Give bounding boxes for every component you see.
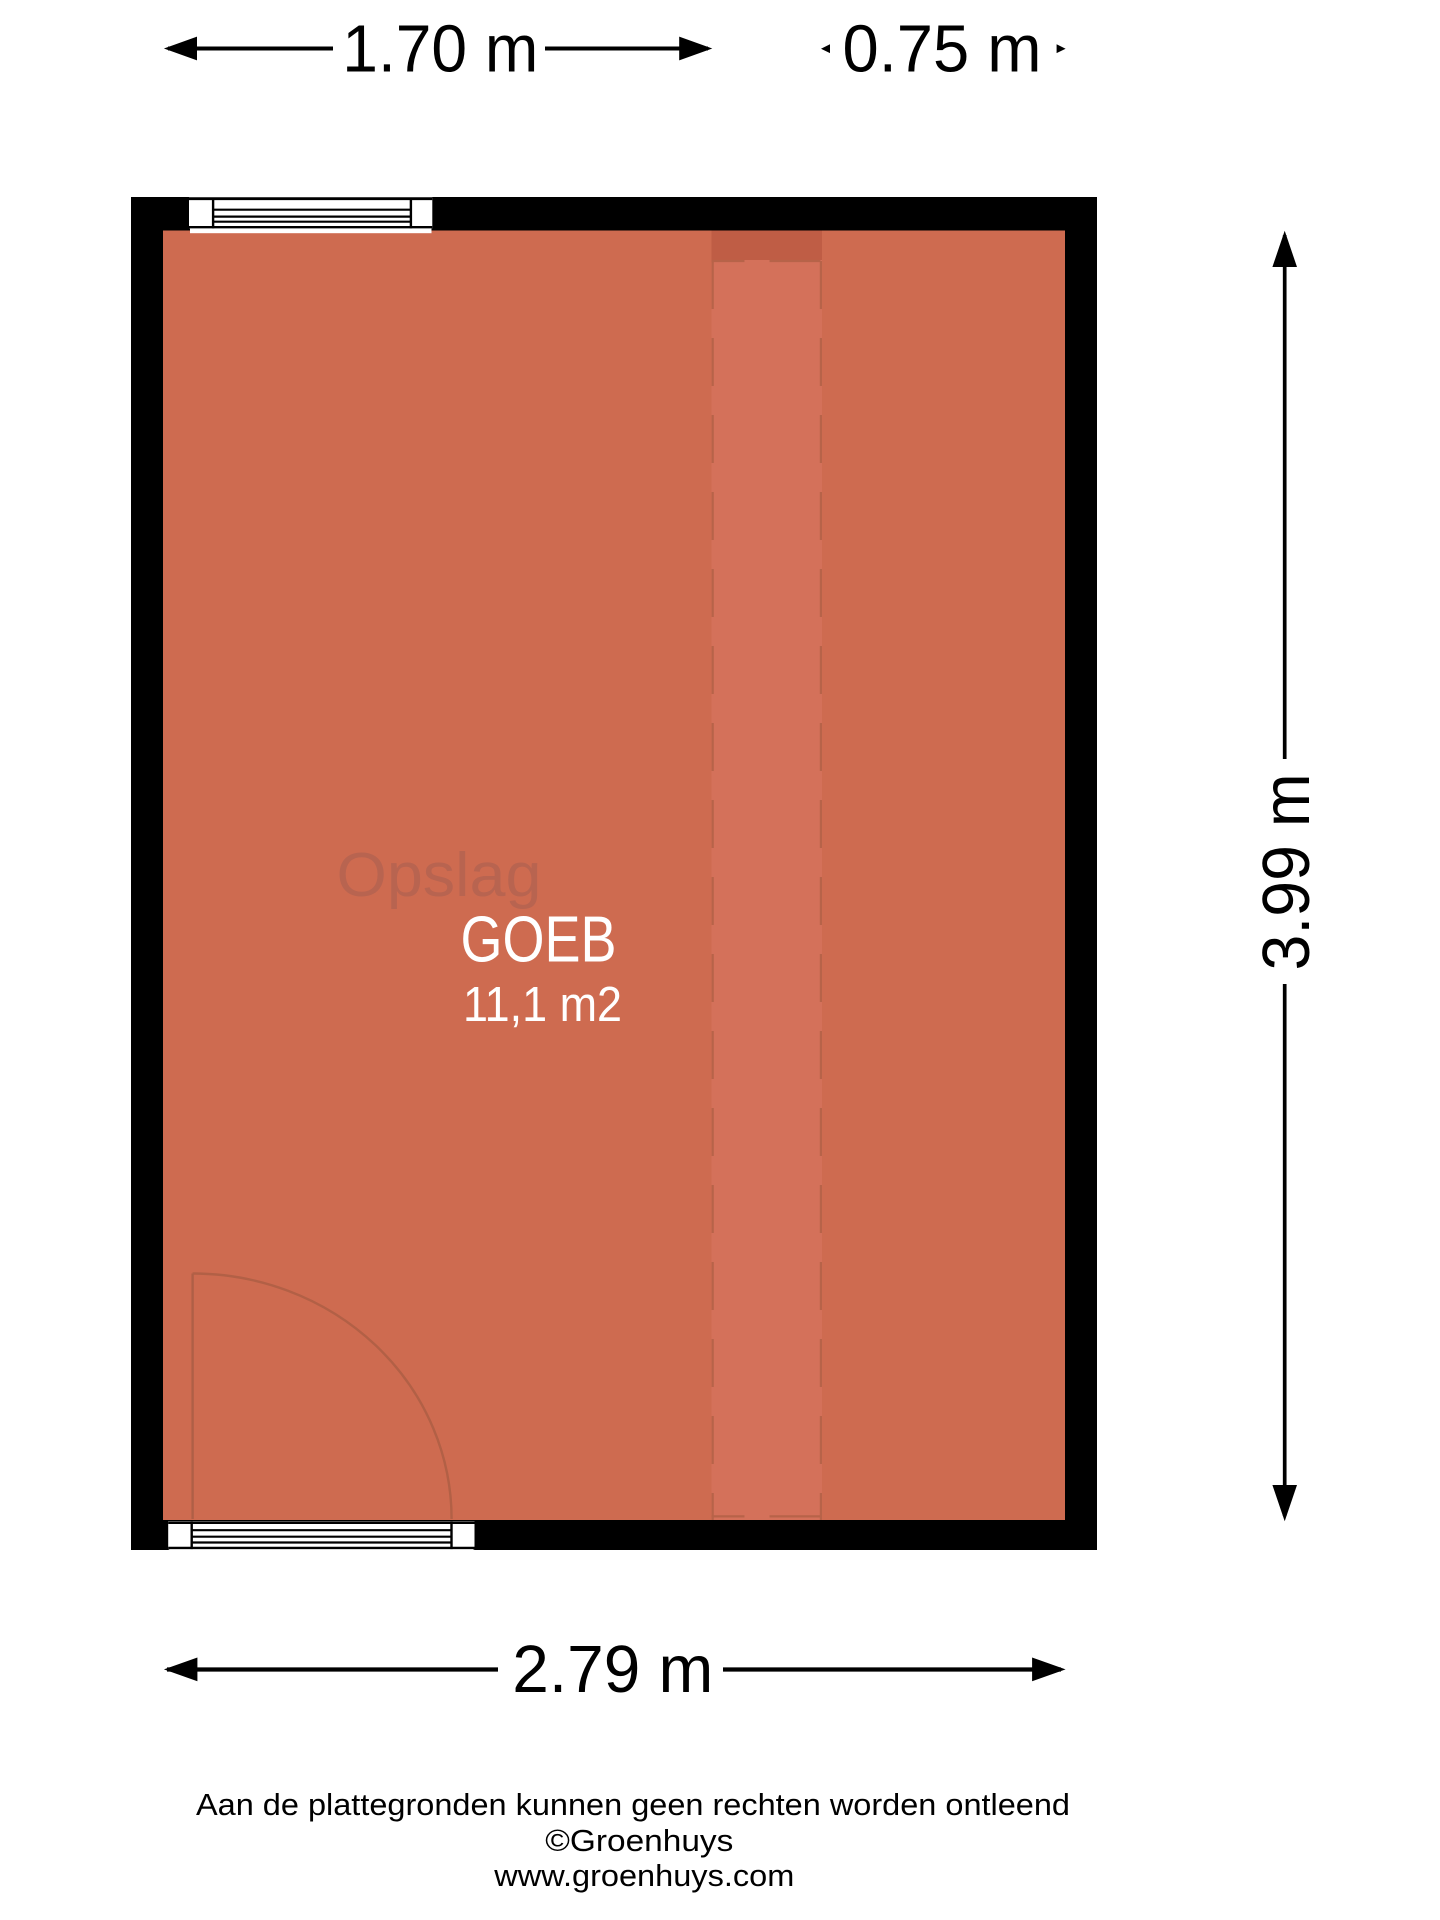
svg-text:0.75 m: 0.75 m	[843, 12, 1042, 87]
svg-text:www.groenhuys.com: www.groenhuys.com	[493, 1858, 794, 1893]
svg-text:Opslag: Opslag	[337, 841, 542, 910]
svg-text:GOEB: GOEB	[461, 903, 617, 976]
svg-text:3.99 m: 3.99 m	[1249, 774, 1324, 971]
svg-text:11,1 m2: 11,1 m2	[463, 978, 622, 1032]
svg-text:Aan de plattegronden kunnen ge: Aan de plattegronden kunnen geen rechten…	[196, 1787, 1070, 1822]
svg-text:©Groenhuys: ©Groenhuys	[545, 1823, 733, 1858]
svg-text:1.70 m: 1.70 m	[342, 12, 538, 87]
svg-text:2.79 m: 2.79 m	[512, 1632, 713, 1707]
